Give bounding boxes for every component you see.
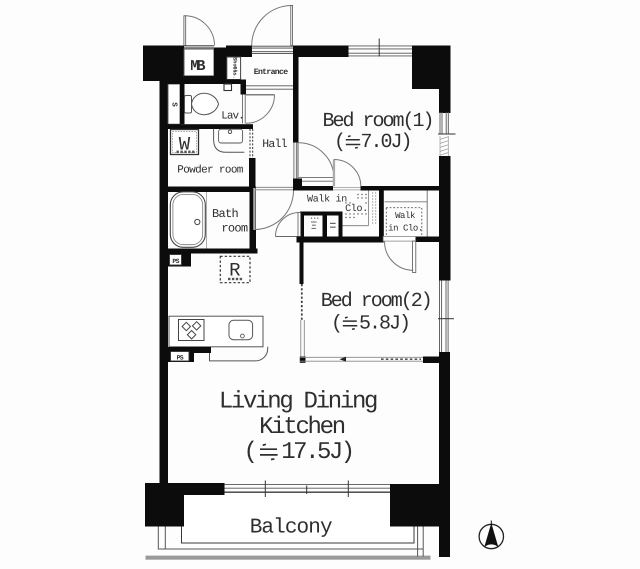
svg-text:(: ( <box>244 439 256 466</box>
svg-text:Walk: Walk <box>395 211 415 221</box>
svg-text:Walk in: Walk in <box>307 193 347 205</box>
svg-text:Bed room(2): Bed room(2) <box>321 290 431 313</box>
svg-text:R: R <box>229 260 240 282</box>
svg-text:Hall: Hall <box>262 138 287 151</box>
svg-text:7.0J): 7.0J) <box>360 131 410 154</box>
svg-text:PS: PS <box>177 354 184 361</box>
svg-text:Entrance: Entrance <box>254 68 288 77</box>
svg-text:Balcony: Balcony <box>250 516 332 539</box>
svg-text:S: S <box>170 102 179 107</box>
svg-text:(: ( <box>331 312 341 335</box>
svg-text:Cls.: Cls. <box>232 66 238 78</box>
svg-text:(: ( <box>334 131 344 154</box>
svg-text:Clo.: Clo. <box>345 203 368 215</box>
svg-text:in Clo.: in Clo. <box>388 224 423 234</box>
svg-text:room: room <box>221 222 248 236</box>
svg-text:17.5J): 17.5J) <box>281 439 352 466</box>
svg-text:Bed room(1): Bed room(1) <box>322 110 432 133</box>
svg-text:PS: PS <box>172 258 179 265</box>
svg-text:Lav.: Lav. <box>221 110 243 122</box>
svg-text:Powder room: Powder room <box>177 165 244 177</box>
svg-text:Bath: Bath <box>212 207 239 221</box>
svg-text:Kitchen: Kitchen <box>259 414 345 441</box>
svg-text:5.8J): 5.8J) <box>359 312 409 335</box>
svg-text:Living Dining: Living Dining <box>219 389 377 416</box>
